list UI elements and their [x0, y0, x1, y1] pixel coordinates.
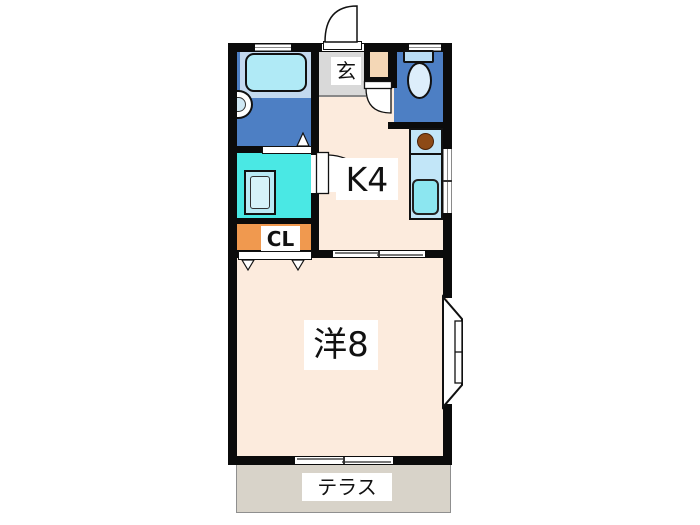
closet-label: CL: [261, 226, 300, 251]
window-pane: [297, 458, 345, 460]
bathtub-icon: [245, 53, 307, 92]
kitchen-side-window-tick: [443, 180, 452, 182]
washing-machine-icon: [244, 170, 276, 215]
western-room-label: 洋8: [304, 320, 378, 370]
wall-toilet-left: [388, 43, 397, 88]
entrance-threshold: [323, 41, 362, 50]
floorplan-canvas: 玄 K4 CL 洋8 テラス: [0, 0, 700, 525]
door-pane: [335, 252, 380, 254]
closet-folding-door-track: [238, 251, 312, 260]
door-pane: [377, 254, 423, 256]
washing-machine-drum: [250, 176, 270, 209]
counter-divider: [409, 153, 443, 155]
window-pane: [342, 461, 391, 463]
bath-folding-door-track: [262, 146, 312, 154]
door-center-tick: [378, 251, 380, 257]
kitchen-label: K4: [336, 158, 398, 200]
bay-window-glass: [455, 321, 462, 383]
washroom-door-opening: [311, 155, 319, 193]
wall-step-bottom: [364, 77, 391, 83]
terrace-sliding-window: [295, 457, 393, 464]
entrance-label: 玄: [331, 57, 361, 85]
terrace-label: テラス: [302, 473, 392, 501]
room-sliding-door: [333, 251, 425, 257]
window-center-tick: [343, 457, 345, 464]
entrance-swing-door: [325, 6, 357, 42]
kitchen-sink-icon: [412, 179, 439, 215]
bath-top-window: [255, 44, 291, 51]
stove-burner-icon: [417, 133, 434, 150]
toilet-icon: [407, 62, 432, 99]
wall-entrance-stub: [364, 43, 370, 81]
wall-washroom-closet: [228, 218, 318, 224]
